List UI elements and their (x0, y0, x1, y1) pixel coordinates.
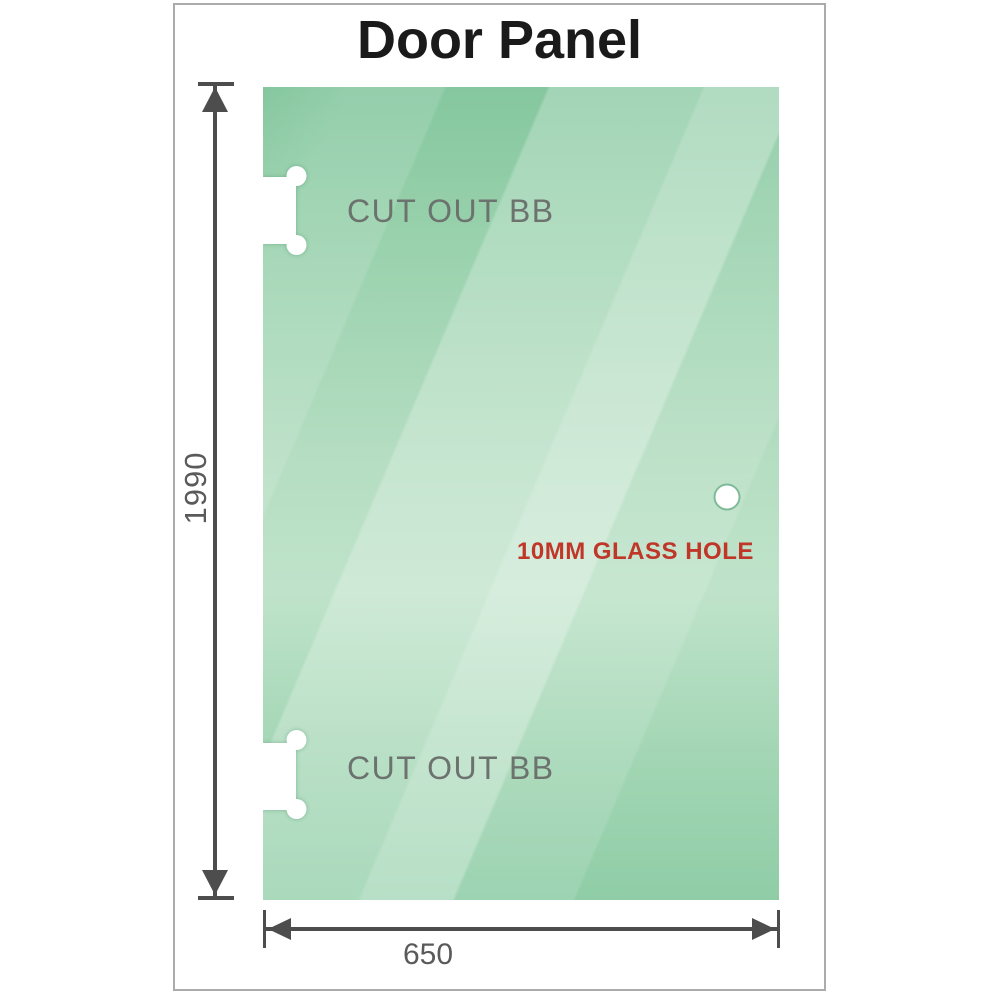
glass-hole-icon (715, 485, 740, 510)
arrow-right-icon (752, 918, 775, 940)
height-dimension-value: 1990 (179, 448, 213, 528)
arrow-up-icon (202, 87, 228, 112)
arrow-left-icon (268, 918, 291, 940)
hinge-cutout-bottom-icon (263, 730, 307, 819)
cutout-bottom-label: CUT OUT BB (347, 750, 555, 787)
page-title: Door Panel (173, 10, 826, 70)
width-dimension-value: 650 (393, 938, 463, 972)
height-dim-cap-bottom (198, 896, 234, 900)
height-dim-line (213, 86, 217, 898)
cutout-top-label: CUT OUT BB (347, 193, 555, 230)
arrow-down-icon (202, 870, 228, 895)
hinge-cutout-top-icon (263, 166, 307, 255)
glass-hole-label: 10MM GLASS HOLE (517, 538, 754, 566)
width-dim-line (266, 927, 778, 931)
